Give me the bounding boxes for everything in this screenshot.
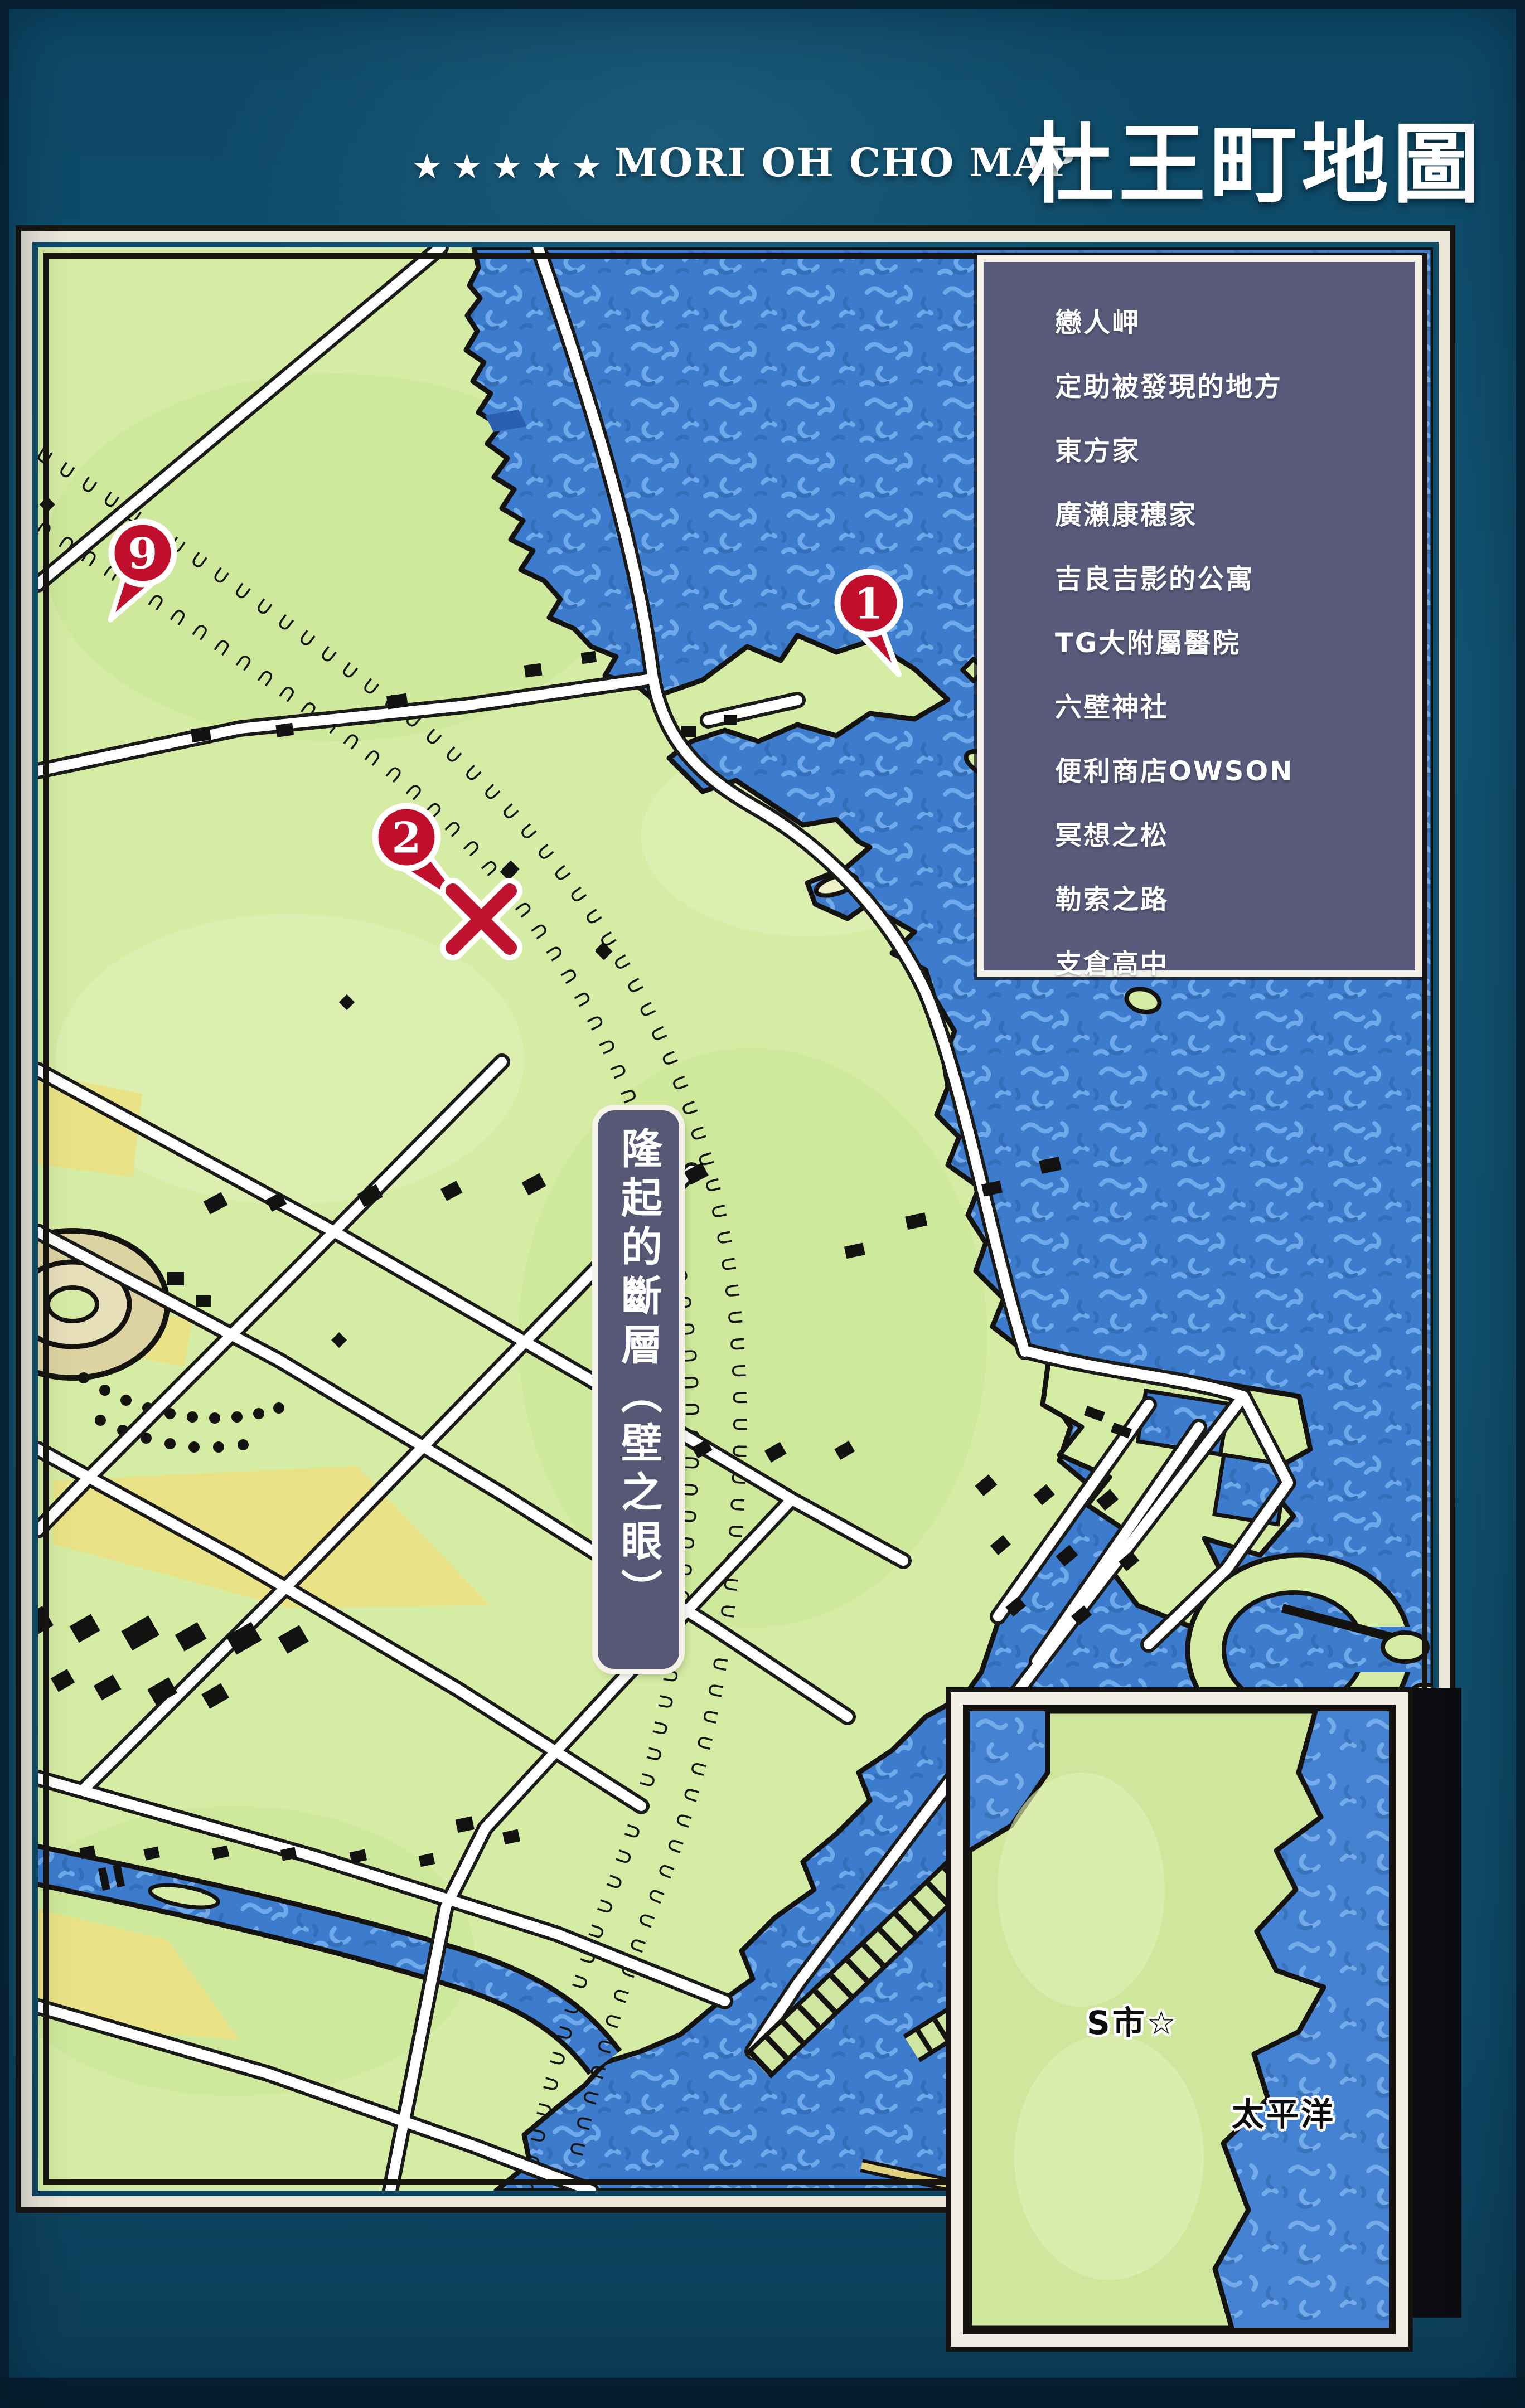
morioh-map-page: { "title": { "stars": "★★★★★", "en": "MO… <box>0 0 1525 2408</box>
legend-item: 便利商店OWSON <box>1055 740 1398 804</box>
legend-item: 勒索之路 <box>1055 868 1398 932</box>
legend-item: 支倉高中 <box>1055 932 1398 996</box>
legend-item: 冥想之松 <box>1055 804 1398 868</box>
legend-item: TG大附屬醫院 <box>1055 611 1398 676</box>
legend-panel: 戀人岬 定助被發現的地方東方家廣瀨康穗家吉良吉影的公寓TG大附屬醫院六壁神社便利… <box>977 255 1422 977</box>
inset-city-label: S市☆ <box>1087 1997 1178 2043</box>
inset-canvas <box>970 1711 1389 2328</box>
title-english: MORI OH CHO MAP <box>614 139 1076 186</box>
fault-label-box: 隆起的斷層（壁之眼） <box>598 1110 679 1669</box>
fault-label-text: 隆起的斷層（壁之眼） <box>609 1127 669 1669</box>
legend-item: 廣瀨康穗家 <box>1055 483 1398 547</box>
bottom-border-strip <box>0 2378 1525 2408</box>
legend-item: 東方家 <box>1055 419 1398 483</box>
inset-ocean-label: 太平洋 <box>1232 2088 1335 2135</box>
page-title: 杜王町地圖 <box>1027 94 1484 220</box>
legend-item: 戀人岬 <box>1055 291 1398 355</box>
legend-items: 戀人岬 定助被發現的地方東方家廣瀨康穗家吉良吉影的公寓TG大附屬醫院六壁神社便利… <box>984 262 1415 996</box>
title-bar: ★★★★★ MORI OH CHO MAP 杜王町地圖 <box>0 84 1525 229</box>
star-icons: ★★★★★ <box>411 146 611 187</box>
marker-1-number: 1 <box>854 579 884 628</box>
legend-item: 定助被發現的地方 <box>1055 355 1398 419</box>
legend-item: 六壁神社 <box>1055 676 1398 740</box>
legend-item: 吉良吉影的公寓 <box>1055 547 1398 611</box>
marker-2-number: 2 <box>392 813 422 862</box>
marker-9-number: 9 <box>128 528 158 578</box>
region-inset-map: S市☆ 太平洋 <box>963 1705 1396 2334</box>
